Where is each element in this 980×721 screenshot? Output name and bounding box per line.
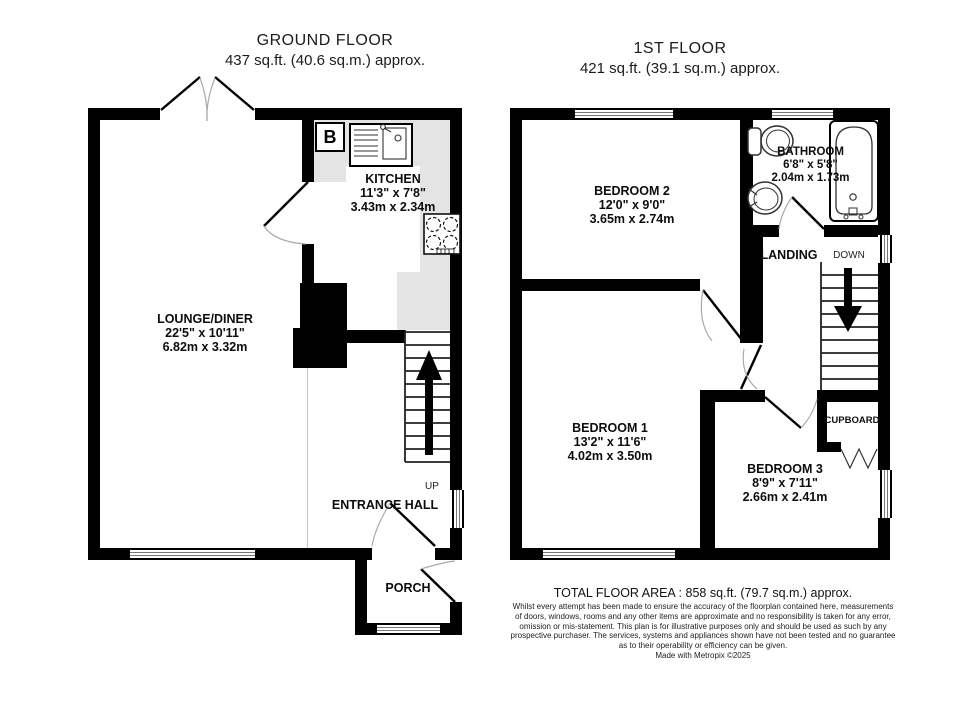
bedroom2-metric: 3.65m x 2.74m [532,212,732,226]
bathroom-imperial: 6'8" x 5'8" [738,159,883,172]
bedroom3-name: BEDROOM 3 [695,462,875,476]
gf-bottom-wall-mid [255,548,372,560]
bedroom3-window [880,470,892,518]
disclaimer-line: of doors, windows, rooms and any other i… [483,612,923,622]
bedroom1-label: BEDROOM 1 13'2" x 11'6" 4.02m x 3.50m [510,421,710,463]
bedroom2-imperial: 12'0" x 9'0" [532,198,732,212]
ground-floor-title-block: GROUND FLOOR 437 sq.ft. (40.6 sq.m.) app… [165,32,485,69]
porch-label: PORCH [358,581,458,595]
down-label: DOWN [819,250,879,261]
gf-right-wall-upper [450,108,462,490]
bedroom1-metric: 4.02m x 3.50m [510,449,710,463]
porch-right-wall [450,602,462,635]
first-floor-title-block: 1ST FLOOR 421 sq.ft. (39.1 sq.m.) approx… [520,40,840,77]
lounge-metric: 6.82m x 3.32m [110,340,300,354]
kitchen-door-icon [264,182,308,244]
lounge-imperial: 22'5" x 10'11" [110,326,300,340]
chimney-breast [300,283,347,368]
up-arrow-head [416,350,442,380]
disclaimer-block: Whilst every attempt has been made to en… [483,602,923,661]
kitchen-imperial: 11'3" x 7'8" [313,186,473,200]
ff-right-wall-lower [878,518,890,560]
hall-divider-line [307,368,308,548]
ff-top-wall-mid [673,108,772,120]
ff-bottom-wall-right [675,548,890,560]
first-floor-title: 1ST FLOOR [520,40,840,58]
entrance-hall-name: ENTRANCE HALL [285,498,485,512]
disclaimer-line: as to their operability or efficiency ca… [483,641,923,651]
up-arrow-shaft [425,376,433,455]
bedroom1-imperial: 13'2" x 11'6" [510,435,710,449]
kitchen-counter-corner [397,272,450,330]
lounge-window [130,548,255,560]
bathroom-door-icon [779,197,824,229]
bedroom-divider-wall [522,279,700,291]
bedroom2-window [575,108,673,120]
ground-floor-title: GROUND FLOOR [165,32,485,50]
cupboard-label: CUPBOARD [812,416,892,427]
landing-south-wall [715,390,765,402]
bathroom-name: BATHROOM [738,146,883,159]
kitchen-sink-icon [349,123,413,167]
gf-bottom-wall-left [88,548,130,560]
disclaimer-line: Whilst every attempt has been made to en… [483,602,923,612]
disclaimer-line: omission or mis-statement. This plan is … [483,622,923,632]
ff-right-wall-mid [878,263,890,470]
bathroom-metric: 2.04m x 1.73m [738,172,883,185]
bathroom-bottom-wall-right [824,225,878,237]
bedroom3-metric: 2.66m x 2.41m [695,490,875,504]
bedroom2-name: BEDROOM 2 [532,184,732,198]
bedroom3-imperial: 8'9" x 7'11" [695,476,875,490]
down-arrow-head [834,306,862,332]
bedroom1-name: BEDROOM 1 [510,421,710,435]
bedroom3-label: BEDROOM 3 8'9" x 7'11" 2.66m x 2.41m [695,462,875,504]
french-doors-icon [161,77,254,121]
disclaimer-line: prospective purchaser. The services, sys… [483,631,923,641]
kitchen-label: KITCHEN 11'3" x 7'8" 3.43m x 2.34m [313,172,473,214]
basin-icon [748,182,782,214]
gf-top-wall-right [255,108,462,120]
ff-bottom-wall-left [510,548,543,560]
boiler-label: B [324,127,337,148]
porch-window [377,623,440,635]
bedroom3-door-icon [765,397,817,428]
kitchen-name: KITCHEN [313,172,473,186]
gf-left-wall [88,108,100,560]
credit-line: Made with Metropix ©2025 [483,651,923,661]
porch-bottom-wall-left [355,623,377,635]
entrance-hall-label: ENTRANCE HALL [285,498,485,512]
kitchen-wall-lower [302,244,314,283]
boiler-icon: B [315,122,345,152]
up-label: UP [412,481,452,492]
ff-left-wall [510,108,522,560]
floorplan-canvas: GROUND FLOOR 437 sq.ft. (40.6 sq.m.) app… [0,0,980,721]
bedroom1-window [543,548,675,560]
bedroom2-door-icon [701,290,742,341]
kitchen-metric: 3.43m x 2.34m [313,200,473,214]
lounge-name: LOUNGE/DINER [110,312,300,326]
total-floor-area: TOTAL FLOOR AREA : 858 sq.ft. (79.7 sq.m… [503,586,903,600]
first-floor-area: 421 sq.ft. (39.1 sq.m.) approx. [520,60,840,77]
cupboard-name: CUPBOARD [812,416,892,427]
bathroom-label: BATHROOM 6'8" x 5'8" 2.04m x 1.73m [738,146,883,185]
landing-window [880,235,892,263]
understairs-wall [347,330,405,343]
ground-floor-area: 437 sq.ft. (40.6 sq.m.) approx. [165,52,485,69]
porch-name: PORCH [358,581,458,595]
first-floor-stairs-icon [821,262,878,390]
down-arrow-shaft [844,268,852,310]
bedroom1-door-icon [741,345,761,389]
cupboard-bottom-wall [817,442,841,452]
gf-right-wall-lower [450,528,462,560]
lounge-label: LOUNGE/DINER 22'5" x 10'11" 6.82m x 3.32… [110,312,300,354]
bathroom-window [772,108,833,120]
bedroom2-label: BEDROOM 2 12'0" x 9'0" 3.65m x 2.74m [532,184,732,226]
ground-stairs-icon [405,330,450,462]
